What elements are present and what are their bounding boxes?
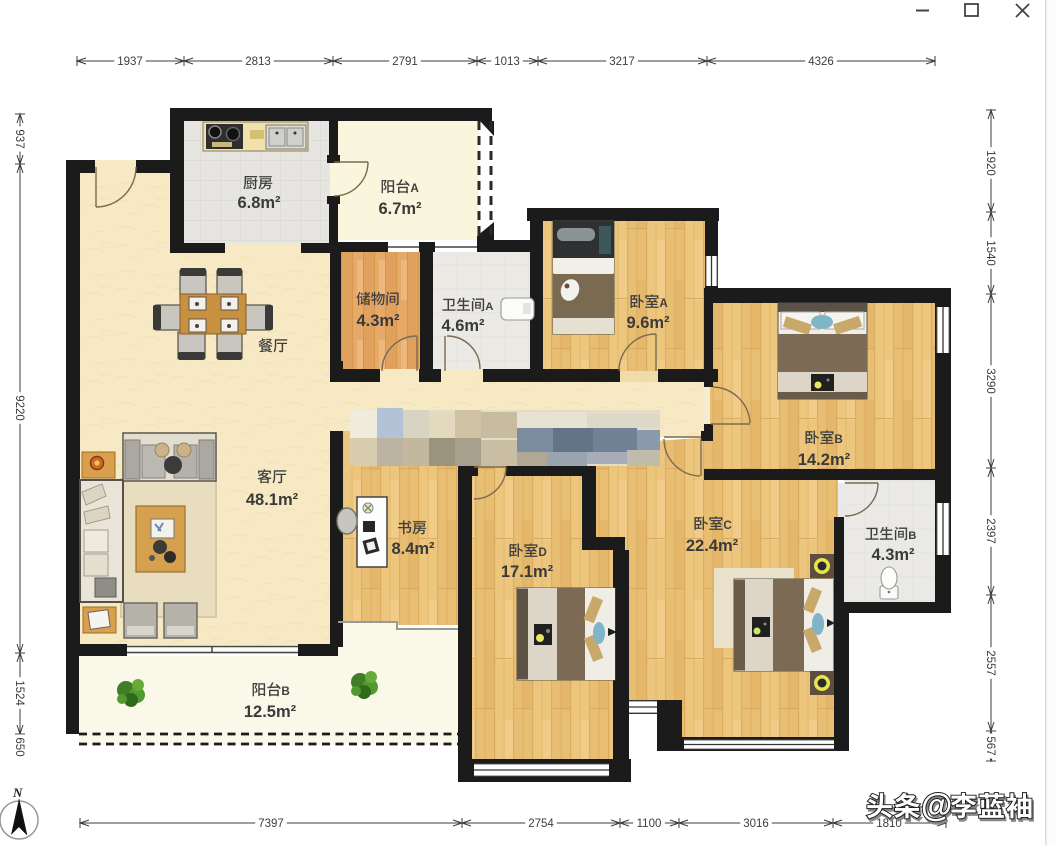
- svg-text:650: 650: [13, 737, 25, 756]
- svg-text:2397: 2397: [984, 518, 996, 544]
- svg-text:8.4m²: 8.4m²: [391, 540, 435, 558]
- svg-text:6.7m²: 6.7m²: [378, 200, 422, 218]
- svg-text:B: B: [281, 685, 289, 698]
- svg-text:4326: 4326: [808, 56, 834, 68]
- svg-text:7397: 7397: [258, 818, 284, 830]
- svg-text:3217: 3217: [609, 56, 635, 68]
- svg-text:4.6m²: 4.6m²: [441, 317, 485, 335]
- svg-text:4.3m²: 4.3m²: [356, 312, 400, 330]
- svg-text:1920: 1920: [984, 150, 996, 176]
- svg-text:2813: 2813: [245, 56, 271, 68]
- svg-text:12.5m²: 12.5m²: [244, 703, 297, 721]
- svg-text:9.6m²: 9.6m²: [626, 314, 670, 332]
- svg-text:1100: 1100: [637, 818, 662, 830]
- svg-text:1937: 1937: [117, 56, 143, 68]
- svg-text:1524: 1524: [13, 680, 25, 706]
- svg-text:14.2m²: 14.2m²: [798, 451, 851, 469]
- svg-text:N: N: [12, 785, 23, 800]
- svg-text:B: B: [908, 530, 916, 542]
- svg-text:@: @: [921, 787, 952, 823]
- svg-text:4.3m²: 4.3m²: [871, 546, 915, 564]
- svg-text:1013: 1013: [494, 56, 520, 68]
- svg-text:3016: 3016: [743, 818, 769, 830]
- svg-text:A: A: [659, 297, 668, 310]
- svg-text:2754: 2754: [528, 818, 554, 830]
- svg-text:B: B: [834, 433, 842, 446]
- svg-text:937: 937: [13, 129, 25, 148]
- svg-text:2791: 2791: [392, 56, 418, 68]
- svg-text:A: A: [485, 301, 493, 313]
- svg-text:2557: 2557: [984, 650, 996, 676]
- svg-text:D: D: [538, 546, 546, 559]
- svg-text:48.1m²: 48.1m²: [246, 491, 299, 509]
- svg-text:3290: 3290: [984, 368, 996, 394]
- svg-text:C: C: [723, 519, 732, 532]
- svg-text:9220: 9220: [13, 395, 25, 421]
- svg-text:22.4m²: 22.4m²: [686, 537, 739, 555]
- svg-text:6.8m²: 6.8m²: [237, 194, 281, 212]
- svg-text:1540: 1540: [984, 240, 996, 266]
- svg-text:17.1m²: 17.1m²: [501, 563, 554, 581]
- svg-text:567: 567: [984, 736, 996, 755]
- svg-text:A: A: [410, 182, 419, 195]
